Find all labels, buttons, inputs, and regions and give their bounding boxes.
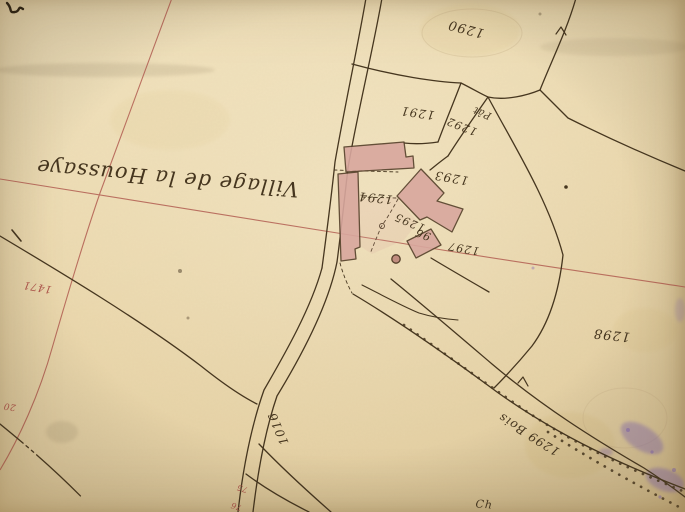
map-canvas: Village de la Houssaye 1290 1291 1292 Pâ… (0, 0, 685, 512)
cadastral-map: Village de la Houssaye 1290 1291 1292 Pâ… (0, 0, 685, 512)
vignette-overlay (0, 0, 685, 512)
